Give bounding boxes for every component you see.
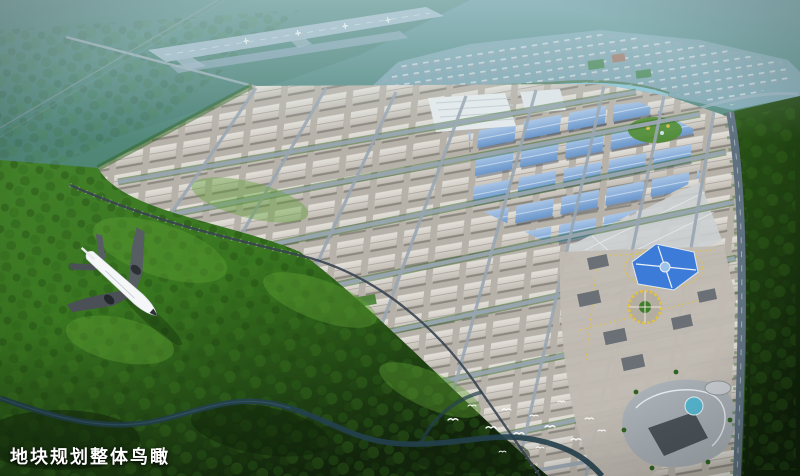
vignette [0, 0, 800, 476]
rendering-canvas [0, 0, 800, 476]
caption: 地块规划整体鸟瞰 [10, 443, 170, 469]
aerial-masterplan-rendering: 地块规划整体鸟瞰 [0, 0, 800, 476]
